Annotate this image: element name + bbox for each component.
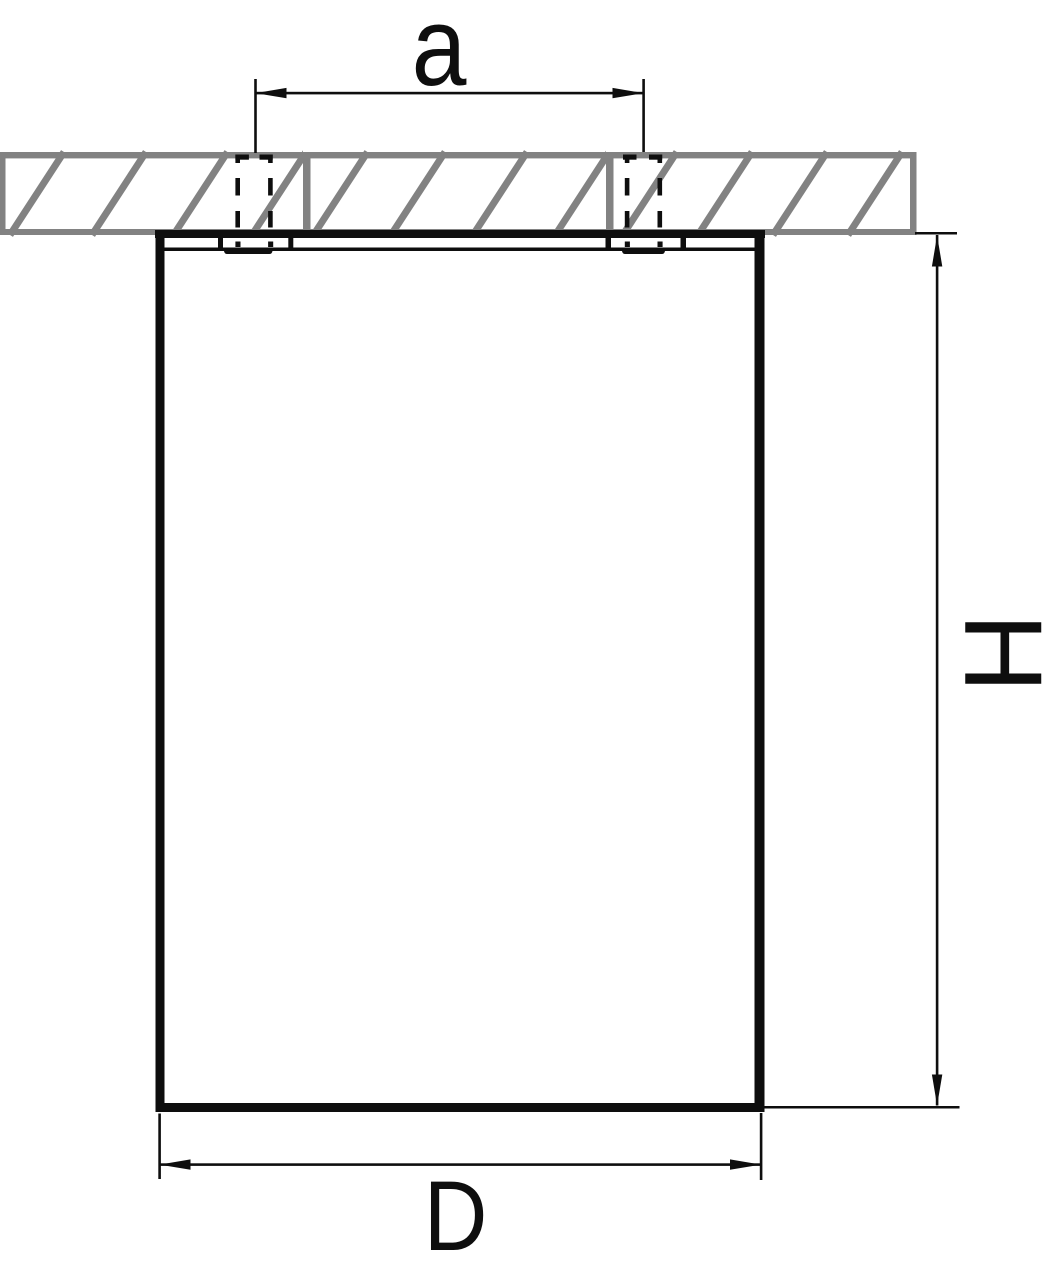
svg-text:a: a bbox=[412, 0, 467, 109]
svg-text:D: D bbox=[424, 1160, 488, 1271]
svg-text:H: H bbox=[941, 613, 1045, 692]
